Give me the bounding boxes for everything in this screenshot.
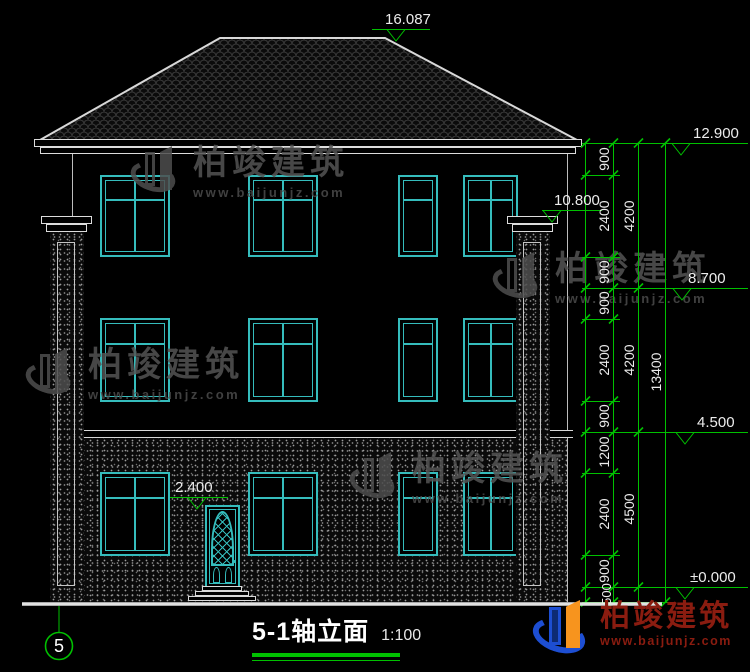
dimension-label: 4200	[621, 344, 637, 375]
elevation-triangle-icon	[673, 289, 691, 301]
dimension-label: 2400	[596, 498, 612, 529]
elevation-label-level2: 4.500	[697, 414, 735, 431]
dimension-tick	[661, 139, 670, 148]
dimension-label: 2400	[596, 344, 612, 375]
dimension-label: 900	[596, 147, 612, 171]
dimension-tick	[609, 315, 618, 324]
belt-course	[62, 430, 573, 438]
elevation-label-walltop: 10.800	[554, 192, 600, 209]
dimension-tick	[581, 315, 590, 324]
dimension-tick	[581, 551, 590, 560]
window	[100, 175, 170, 257]
dimension-tick	[581, 397, 590, 406]
dimension-label: 4500	[621, 493, 637, 524]
dimension-tick	[609, 551, 618, 560]
dimension-tick	[609, 139, 618, 148]
dimension-tick	[634, 139, 643, 148]
eave-fascia-upper	[34, 139, 582, 147]
brand-url: www.baijunjz.com	[600, 634, 732, 648]
drawing-scale: 1:100	[381, 627, 421, 644]
elevation-triangle-icon	[676, 433, 694, 445]
left-column	[50, 232, 84, 602]
left-column-capital-top	[41, 216, 92, 224]
door-knob	[233, 560, 236, 563]
entry-door	[205, 505, 240, 588]
left-column-capital	[46, 224, 87, 232]
dimension-tick	[581, 171, 590, 180]
window	[100, 472, 170, 556]
axis-number: 5	[54, 636, 64, 656]
elevation-triangle-icon	[676, 588, 694, 600]
dimension-tick	[581, 428, 590, 437]
door-panel-right	[225, 567, 232, 583]
dimension-label: 900	[596, 291, 612, 315]
dimension-tick	[581, 253, 590, 262]
dimension-tick	[581, 583, 590, 592]
left-column-panel	[57, 242, 75, 586]
right-column	[516, 232, 550, 602]
window	[248, 318, 318, 402]
roof-outline	[40, 38, 577, 140]
dimension-tick	[581, 469, 590, 478]
window	[398, 318, 438, 402]
brand-name: 柏竣建筑	[600, 600, 732, 633]
drawing-title: 5-1轴立面	[252, 618, 369, 646]
dimension-label: 1200	[596, 436, 612, 467]
dimension-label: 900	[596, 559, 612, 583]
axis-bubble	[46, 633, 73, 660]
window	[100, 318, 170, 402]
eave-fascia-lower	[40, 147, 576, 154]
dimension-label: 900	[596, 260, 612, 284]
title-block: 5-1轴立面1:100	[252, 612, 421, 661]
dimension-tick	[609, 253, 618, 262]
dimension-tick	[609, 428, 618, 437]
brand-block: 柏竣建筑 www.baijunjz.com	[536, 600, 732, 658]
title-underline-bar	[252, 653, 400, 657]
dimension-tick	[581, 284, 590, 293]
elevation-label-level3: 8.700	[688, 270, 726, 287]
dimension-label-total: 13400	[648, 352, 664, 391]
window	[398, 175, 438, 257]
dimension-tick	[634, 583, 643, 592]
right-column-capital-top	[507, 216, 558, 224]
dimension-label: 2400	[596, 200, 612, 231]
window	[463, 318, 518, 402]
dimension-label: 900	[596, 404, 612, 428]
hip-roof	[28, 24, 590, 142]
watermark-name: 柏竣建筑	[555, 252, 711, 288]
brand-logo-icon	[536, 600, 592, 658]
dimension-tick	[609, 397, 618, 406]
dimension-ticks	[581, 139, 670, 607]
dimension-tick	[609, 284, 618, 293]
window	[248, 175, 318, 257]
door-panel-left	[213, 567, 220, 583]
dimension-tick	[634, 284, 643, 293]
right-column-panel	[523, 242, 541, 586]
watermark-url: www.baijunjz.com	[555, 291, 711, 306]
window	[398, 472, 438, 556]
wall-right-edge	[567, 154, 568, 602]
right-column-capital	[512, 224, 553, 232]
window	[248, 472, 318, 556]
window	[463, 472, 518, 556]
door-step-3	[188, 596, 256, 601]
elevation-label-eave: 12.900	[693, 125, 739, 142]
title-underline-thin	[252, 660, 400, 661]
elevation-label-ground: ±0.000	[690, 569, 736, 586]
dimension-label: 4200	[621, 200, 637, 231]
dimension-tick	[609, 171, 618, 180]
dimension-tick	[634, 428, 643, 437]
elevation-triangle-icon	[672, 144, 690, 156]
dimension-tick	[609, 583, 618, 592]
dimension-tick	[609, 469, 618, 478]
